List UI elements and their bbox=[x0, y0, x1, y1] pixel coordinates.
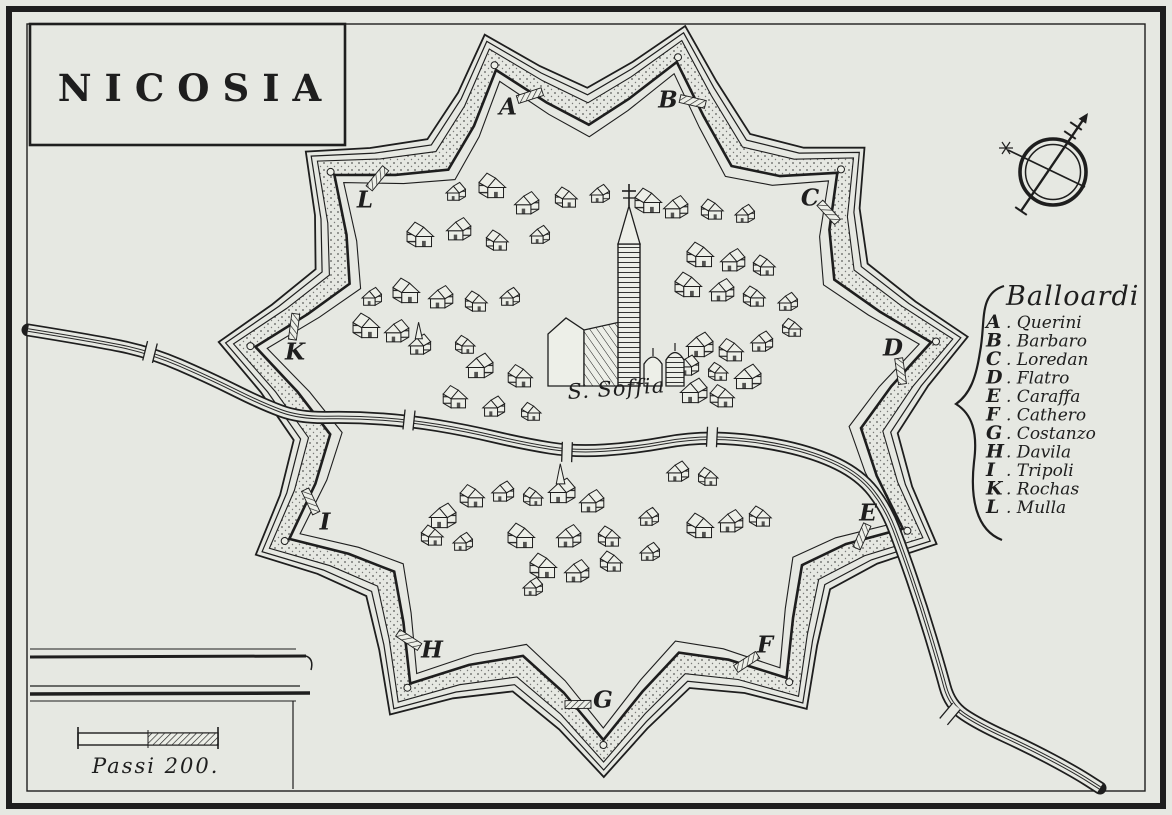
legend-entry-name: . Costanzo bbox=[1006, 424, 1096, 444]
bridge-marker bbox=[562, 442, 573, 462]
title-box: NICOSIA bbox=[30, 24, 345, 145]
legend-entry-name: . Loredan bbox=[1006, 350, 1089, 370]
bastion-label-E: E bbox=[858, 500, 877, 527]
bastion-guerite bbox=[247, 343, 254, 350]
bastion-label-D: D bbox=[882, 335, 903, 362]
bridge-marker bbox=[403, 410, 415, 431]
bridge-marker bbox=[706, 427, 717, 447]
bastion-guerite bbox=[675, 54, 682, 61]
bastion-label-C: C bbox=[801, 185, 820, 212]
compass-needle-arrowhead bbox=[1079, 113, 1088, 124]
bastion-guerite bbox=[281, 538, 288, 545]
legend-entry-name: . Davila bbox=[1006, 443, 1071, 463]
legend-entry-name: . Caraffa bbox=[1006, 387, 1080, 407]
legend-entry-name: . Tripoli bbox=[1006, 461, 1074, 481]
bastion-label-L: L bbox=[356, 187, 373, 214]
bastion-label-B: B bbox=[657, 87, 677, 114]
bastion-guerite bbox=[786, 679, 793, 686]
bastion-guerite bbox=[838, 166, 845, 173]
legend-balloardi: Balloardi A. QueriniB. BarbaroC. Loredan… bbox=[956, 281, 1139, 540]
bastion-guerite bbox=[904, 527, 911, 534]
compass-rose-icon bbox=[999, 113, 1088, 215]
engraved-map-nicosia: S. Soffia ABCDEFGHIKL NICOSIA Balloardi … bbox=[0, 0, 1172, 815]
scale-label: Passi 200. bbox=[91, 754, 219, 778]
legend-entries: A. QueriniB. BarbaroC. LoredanD. FlatroE… bbox=[984, 311, 1096, 518]
bastion-guerite bbox=[327, 168, 334, 175]
legend-entry-name: . Mulla bbox=[1006, 498, 1066, 518]
bastion-guerite bbox=[404, 684, 411, 691]
scale-bar: Passi 200. bbox=[78, 727, 219, 778]
legend-title: Balloardi bbox=[1005, 281, 1139, 312]
scale-bar-hatched-half bbox=[148, 733, 218, 745]
legend-entry-letter: L bbox=[985, 496, 999, 518]
bastion-label-A: A bbox=[497, 94, 517, 121]
bastion-guerite bbox=[933, 338, 940, 345]
legend-entry-name: . Barbaro bbox=[1006, 332, 1087, 352]
bastion-label-I: I bbox=[319, 509, 332, 536]
legend-entry-name: . Cathero bbox=[1006, 406, 1086, 426]
legend-entry-name: . Flatro bbox=[1006, 369, 1069, 389]
cathedral-dome-2 bbox=[666, 353, 684, 387]
bastion-guerite bbox=[600, 742, 607, 749]
bastion-guerite bbox=[491, 62, 498, 69]
bastion-label-K: K bbox=[284, 339, 306, 366]
legend-entry-name: . Querini bbox=[1006, 313, 1082, 333]
bastion-label-H: H bbox=[420, 637, 444, 664]
legend-entry-name: . Rochas bbox=[1006, 480, 1079, 500]
bastion-ramp bbox=[565, 700, 591, 708]
bastion-label-G: G bbox=[593, 687, 613, 714]
bastion-label-F: F bbox=[756, 632, 775, 659]
map-canvas: S. Soffia ABCDEFGHIKL NICOSIA Balloardi … bbox=[0, 0, 1172, 815]
compass-tail-bar bbox=[1015, 207, 1027, 215]
map-title: NICOSIA bbox=[58, 66, 335, 110]
cathedral-tower bbox=[618, 244, 640, 386]
